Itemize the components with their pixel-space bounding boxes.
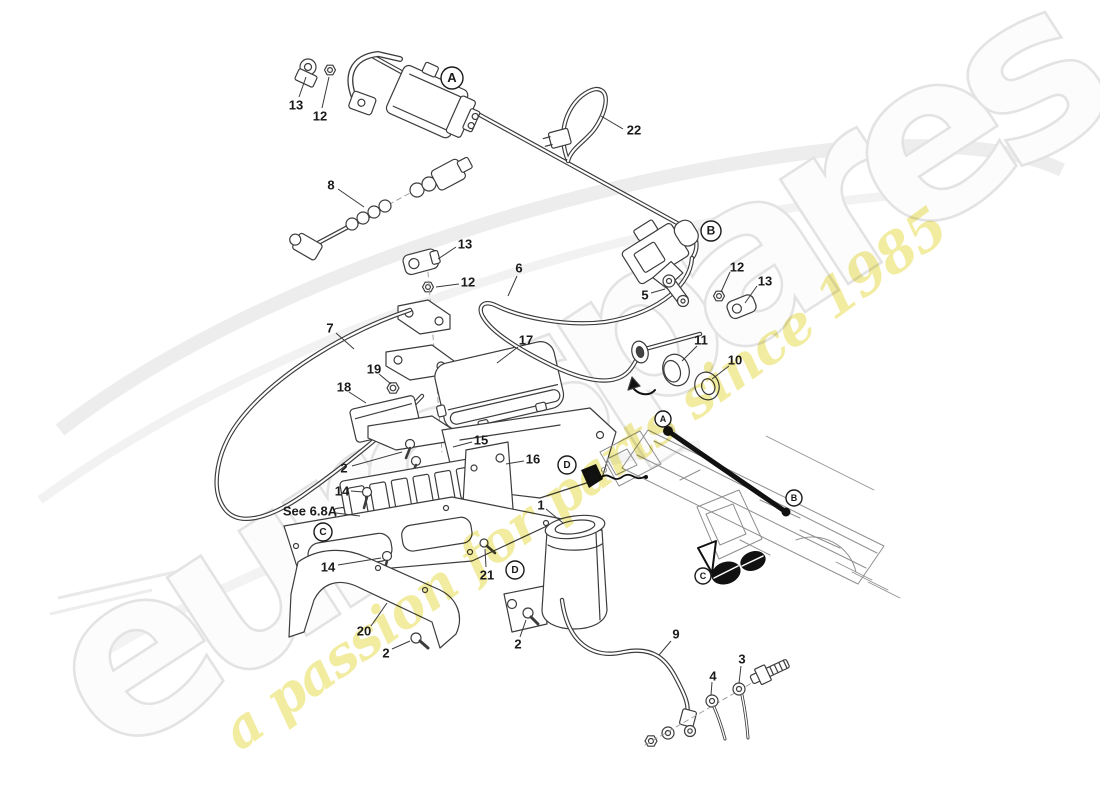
cable-8-assembly (286, 153, 476, 261)
nut-12-mid (423, 282, 434, 292)
part-label-12: 12 (313, 108, 327, 123)
nut-12-top (325, 65, 336, 75)
svg-text:D: D (511, 565, 518, 576)
svg-text:A: A (447, 70, 457, 85)
callout-d: D (506, 561, 524, 579)
leader-line (711, 682, 712, 695)
part-label-8: 8 (327, 177, 334, 192)
lead-3 (733, 683, 748, 738)
part-label-7: 7 (326, 320, 333, 335)
callout-a: A (441, 67, 463, 89)
stud-3 (748, 655, 791, 687)
nut-12-right (714, 291, 725, 301)
part-label-10: 10 (728, 352, 742, 367)
leader-line (601, 116, 623, 129)
callout-a: A (655, 411, 671, 427)
exploded-parts-diagram: eurospares (0, 0, 1100, 800)
svg-text:D: D (563, 460, 570, 471)
leader-line (438, 247, 456, 259)
leader-line (659, 641, 671, 655)
cable-22 (542, 89, 606, 161)
part-label-5: 5 (641, 287, 648, 302)
nut-19 (387, 383, 399, 393)
part-label-13: 13 (289, 97, 303, 112)
part-label-12: 12 (461, 274, 475, 289)
leader-line (338, 189, 364, 207)
part-label-6: 6 (515, 260, 522, 275)
part-label-12: 12 (730, 259, 744, 274)
part-label-14: 14 (321, 559, 336, 574)
part-label-see-6.8a: See 6.8A (283, 503, 338, 518)
callout-c: C (695, 568, 711, 584)
part-label-9: 9 (672, 626, 679, 641)
part-label-2: 2 (514, 636, 521, 651)
part-label-2: 2 (382, 645, 389, 660)
part-label-15: 15 (474, 432, 488, 447)
svg-text:B: B (791, 493, 798, 503)
svg-text:C: C (700, 571, 707, 581)
part-label-2: 2 (340, 460, 347, 475)
svg-text:C: C (319, 527, 326, 538)
part-label-22: 22 (627, 122, 641, 137)
part-label-18: 18 (337, 379, 351, 394)
part-label-13: 13 (758, 273, 772, 288)
svg-text:A: A (660, 414, 667, 424)
callout-d: D (558, 456, 576, 474)
callout-c: C (314, 523, 332, 541)
part-label-20: 20 (357, 623, 371, 638)
leader-line (739, 666, 741, 683)
part-label-13: 13 (458, 236, 472, 251)
part-label-21: 21 (480, 567, 494, 582)
lead-4 (706, 695, 725, 739)
clip-13-top (294, 59, 317, 88)
part-label-3: 3 (738, 651, 745, 666)
part-label-11: 11 (694, 332, 708, 347)
part-label-4: 4 (709, 668, 717, 683)
callout-b: B (701, 221, 721, 241)
actuator-a-assembly (348, 53, 491, 147)
svg-text:B: B (707, 224, 716, 238)
leader-line (322, 77, 329, 108)
part-label-17: 17 (519, 332, 533, 347)
parts-diagram-page: eurospares (0, 0, 1100, 800)
part-label-19: 19 (367, 361, 381, 376)
part-label-14: 14 (335, 483, 350, 498)
part-label-16: 16 (526, 451, 540, 466)
callout-b: B (786, 490, 802, 506)
part-label-1: 1 (537, 497, 544, 512)
